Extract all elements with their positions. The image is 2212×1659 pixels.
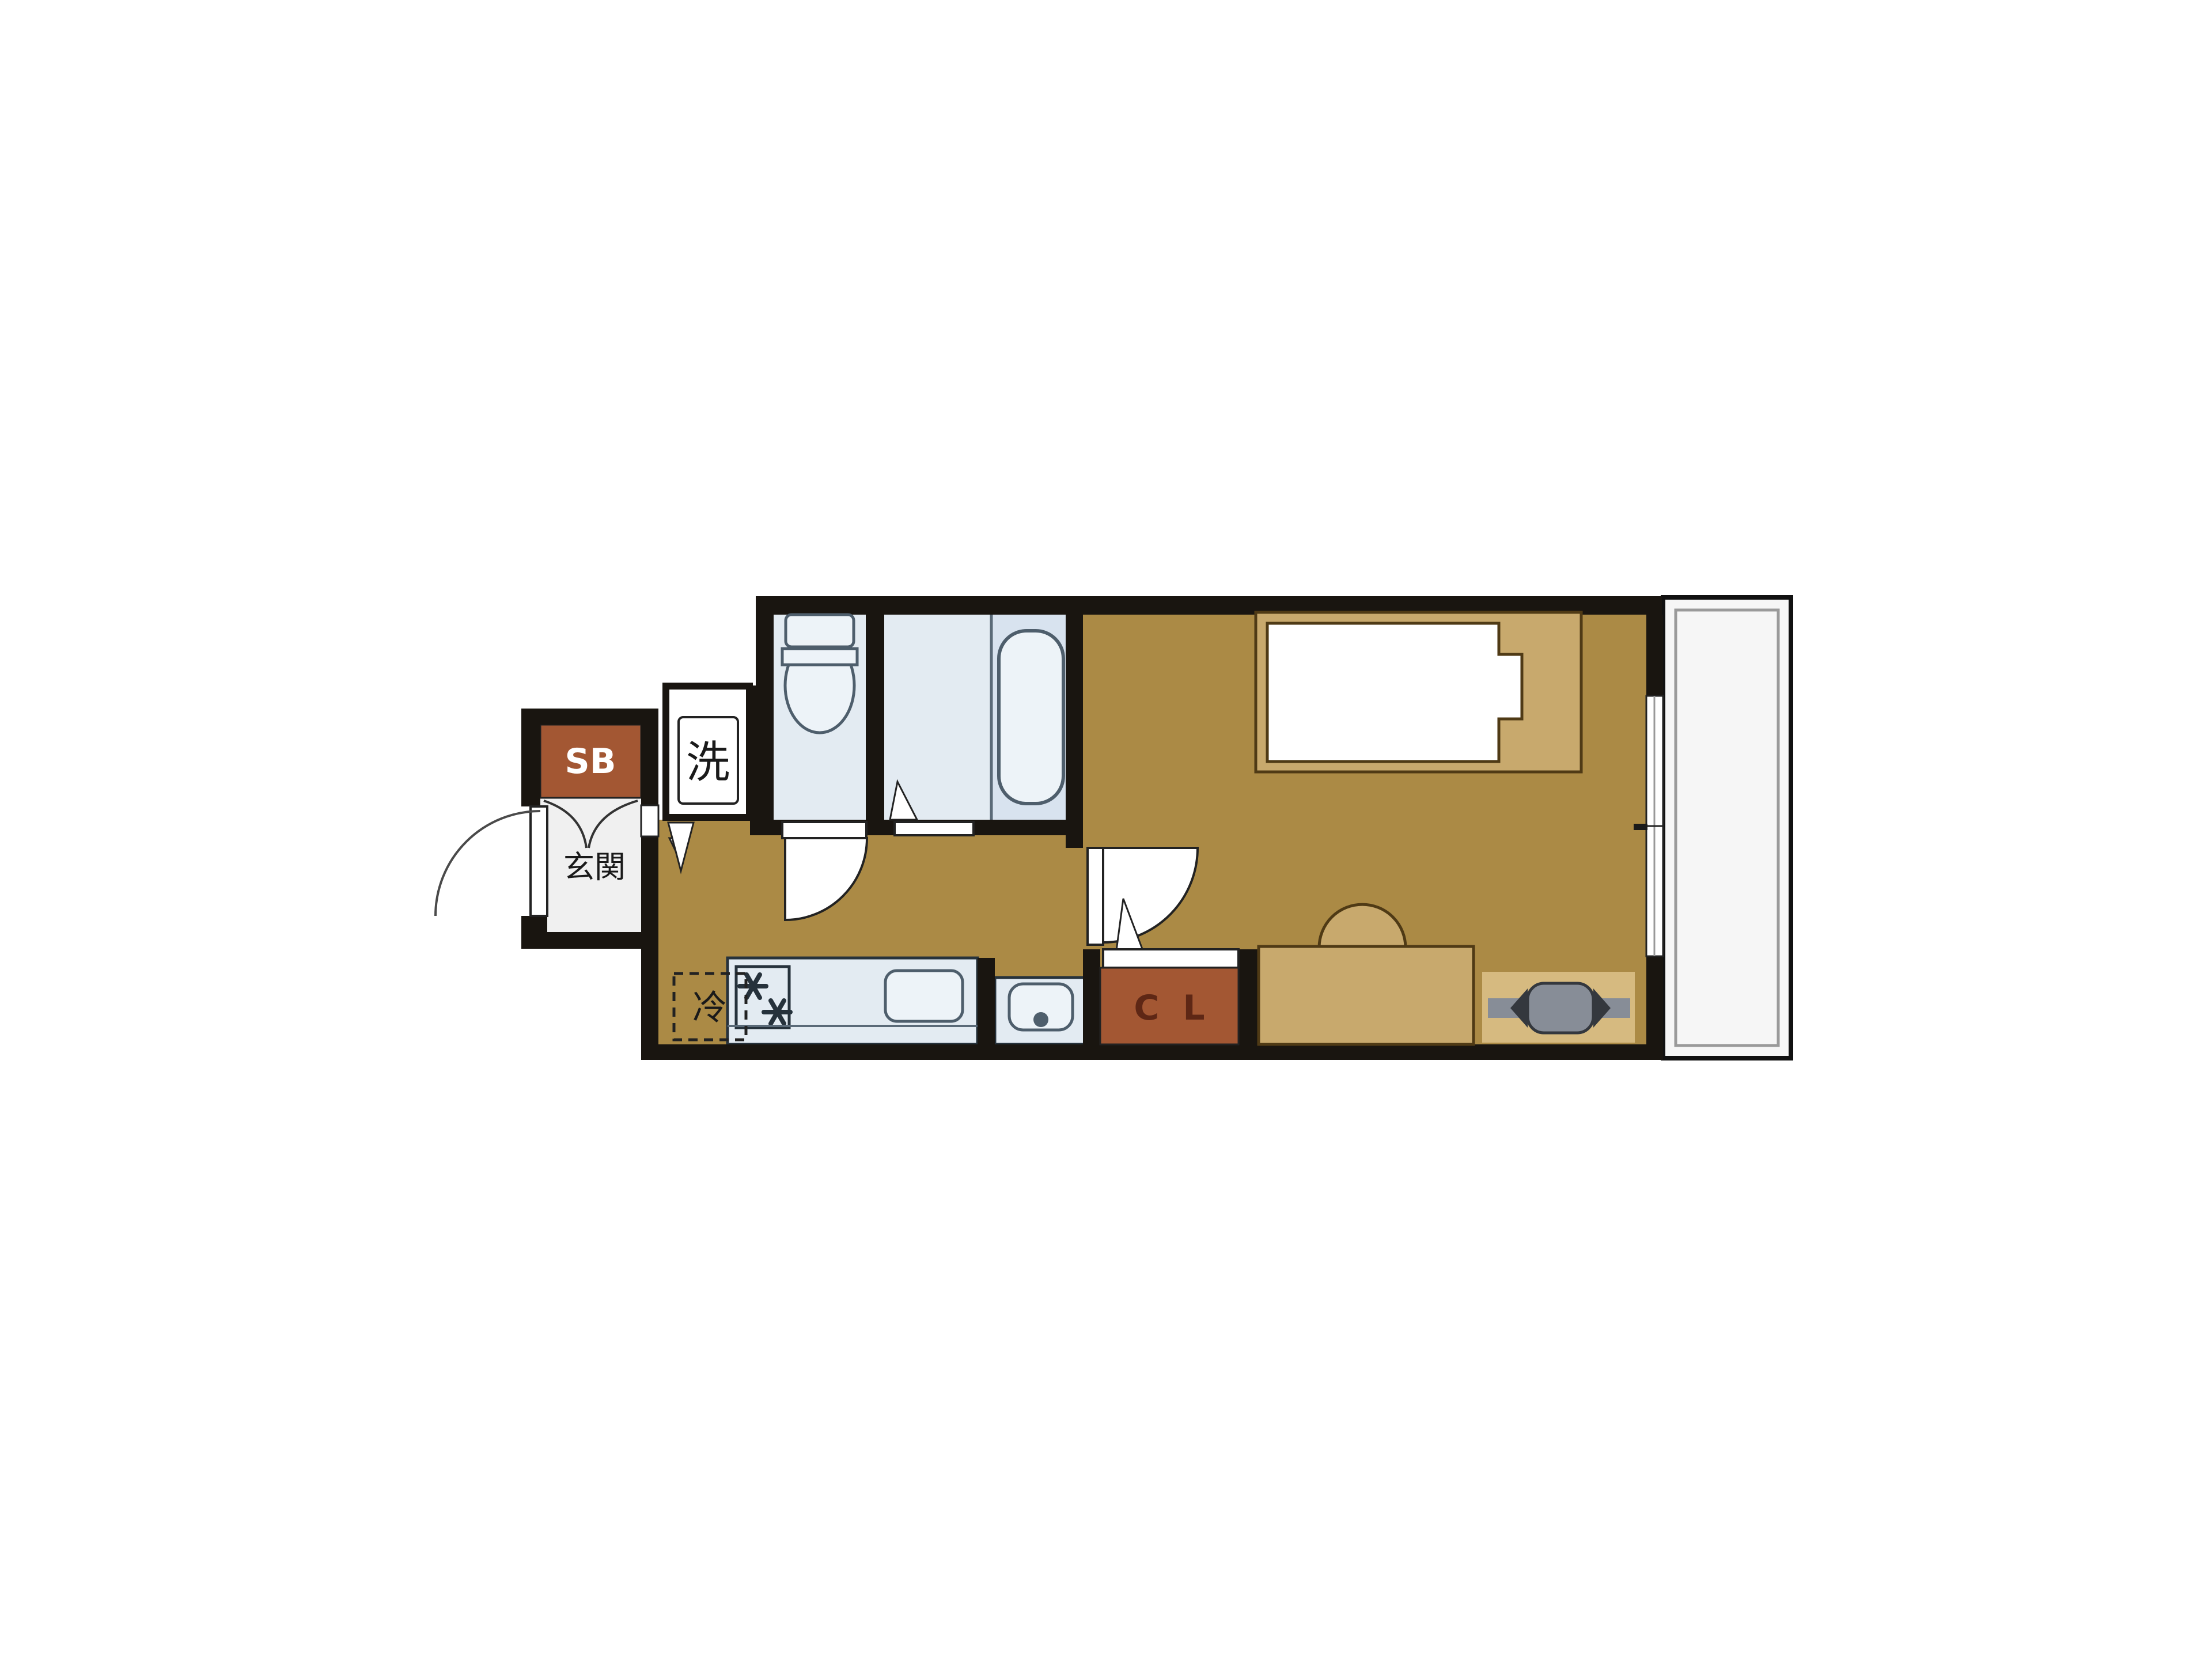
washing-machine-label: 洗 <box>686 737 730 788</box>
refrigerator-label: 冷 <box>692 988 727 1028</box>
wall-bottom <box>641 1044 1663 1060</box>
ac-unit <box>1528 983 1593 1033</box>
toilet-threshold <box>782 822 866 838</box>
main-door-leaf <box>1088 848 1103 945</box>
shoe-box-label: SB <box>565 741 616 782</box>
bathtub <box>999 631 1063 804</box>
counter-sink <box>885 971 963 1021</box>
bed-mattress <box>1267 623 1522 762</box>
wall-hall-closet <box>1083 949 1100 1060</box>
wall-toilet-bath <box>866 615 884 820</box>
closet-label: C L <box>1134 988 1210 1028</box>
wall-bath-main <box>1066 615 1083 848</box>
window-tick <box>1634 824 1647 830</box>
bath-threshold <box>895 822 974 835</box>
toilet-seat-bar <box>782 649 857 665</box>
wall-entrance-bottom <box>521 932 658 949</box>
washbasin-faucet-dot <box>1033 1012 1048 1027</box>
floor-plan-page: SB 玄関 洗 冷 C L <box>0 0 2212 1659</box>
toilet-tank <box>786 615 854 647</box>
wall-entrance-top <box>521 709 658 725</box>
entrance-door-arc <box>435 811 540 916</box>
wall-window-upper <box>1646 615 1663 696</box>
table <box>1259 946 1474 1044</box>
wall-window-lower <box>1646 956 1663 1060</box>
entrance-label: 玄関 <box>563 849 626 885</box>
wall-closet-right <box>1238 949 1257 1060</box>
closet-threshold <box>1103 949 1238 968</box>
wall-counter-stub <box>978 958 995 1060</box>
entrance-door-leaf <box>531 806 547 916</box>
wall-washer-right <box>750 685 774 835</box>
genkan-step <box>641 805 658 836</box>
balcony <box>1663 597 1791 1058</box>
floor-plan-canvas: SB 玄関 洗 冷 C L <box>0 0 2212 1659</box>
